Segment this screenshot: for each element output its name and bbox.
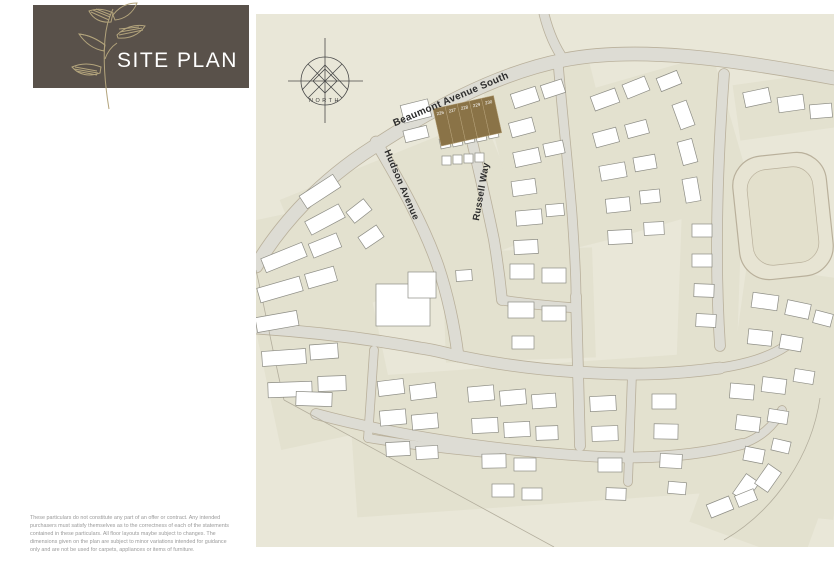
building: [492, 484, 514, 497]
compass-label: NORTH: [309, 98, 341, 104]
building: [514, 458, 536, 471]
disclaimer-line: dimensions given on the plan are subject…: [30, 538, 280, 546]
building: [411, 413, 438, 430]
pond-inner: [745, 165, 821, 267]
building: [377, 378, 405, 396]
building: [499, 389, 526, 406]
building: [660, 453, 683, 468]
building: [605, 197, 630, 213]
building: [536, 426, 558, 441]
road: [628, 374, 632, 482]
building: [729, 383, 754, 400]
building: [386, 441, 411, 456]
building: [809, 103, 832, 119]
building: [512, 336, 534, 349]
building: [508, 302, 534, 318]
building: [442, 156, 451, 165]
building: [668, 481, 687, 495]
building: [472, 417, 499, 433]
building: [475, 153, 484, 162]
building: [262, 348, 307, 366]
building: [694, 284, 714, 298]
building: [514, 239, 539, 254]
building: [453, 155, 462, 164]
building: [767, 409, 789, 425]
building: [598, 458, 622, 472]
building: [777, 94, 805, 112]
building: [318, 376, 347, 392]
disclaimer-line: purchasers must satisfy themselves as to…: [30, 522, 280, 530]
building: [296, 391, 332, 406]
building: [310, 343, 339, 360]
building: [590, 395, 617, 411]
building: [692, 254, 712, 267]
building: [639, 189, 660, 204]
building: [510, 264, 534, 279]
building: [456, 269, 473, 281]
page-title: SITE PLAN: [117, 49, 238, 73]
brand-logo: SITE PLAN: [33, 5, 249, 88]
building: [652, 394, 676, 409]
disclaimer-line: These particulars do not constitute any …: [30, 514, 280, 522]
site-plan-map: 226227228229230Beaumont Avenue SouthHuds…: [256, 14, 834, 547]
building: [608, 229, 633, 244]
building: [464, 154, 473, 163]
building: [793, 369, 815, 385]
building: [409, 382, 437, 400]
building: [747, 329, 772, 346]
building: [542, 268, 566, 283]
building: [416, 445, 439, 459]
building: [751, 292, 779, 310]
site-plan-svg: 226227228229230Beaumont Avenue SouthHuds…: [256, 14, 834, 547]
disclaimer-line: only and are not be used for carpets, ap…: [30, 546, 280, 554]
building: [735, 415, 761, 433]
building: [606, 488, 626, 501]
disclaimer-text: These particulars do not constitute any …: [30, 514, 280, 555]
building: [546, 203, 565, 217]
building: [644, 221, 665, 235]
building: [379, 409, 406, 426]
building: [761, 377, 787, 395]
building: [408, 272, 436, 298]
building: [692, 224, 712, 237]
building: [654, 424, 678, 439]
building: [522, 488, 542, 500]
building: [532, 393, 557, 409]
building: [467, 385, 494, 402]
disclaimer-line: contained in these particulars. All floo…: [30, 530, 280, 538]
building: [504, 421, 531, 437]
building: [592, 426, 619, 442]
building: [542, 306, 566, 321]
building: [696, 313, 717, 327]
building: [482, 454, 506, 468]
building: [515, 209, 542, 226]
building: [511, 178, 537, 196]
landscape-pond: [730, 149, 834, 282]
